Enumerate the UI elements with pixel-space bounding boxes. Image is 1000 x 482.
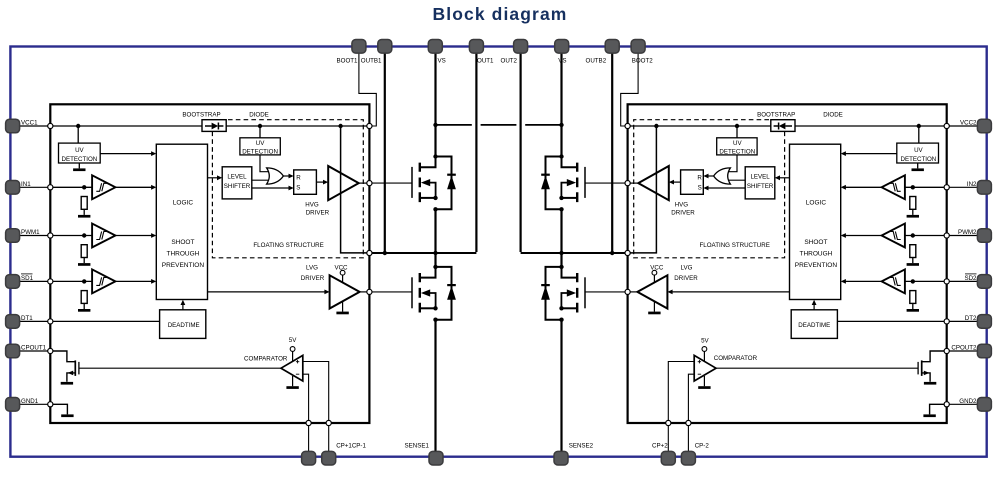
svg-text:PREVENTION: PREVENTION xyxy=(795,262,838,269)
svg-text:DIODE: DIODE xyxy=(823,112,843,119)
svg-text:SHIFTER: SHIFTER xyxy=(224,183,251,190)
svg-text:S: S xyxy=(296,184,300,191)
svg-text:CP+1CP-1: CP+1CP-1 xyxy=(336,443,366,450)
svg-text:LEVEL: LEVEL xyxy=(750,173,770,180)
svg-text:UV: UV xyxy=(914,147,923,154)
svg-text:SHOOT: SHOOT xyxy=(804,239,827,246)
svg-text:FLOATING STRUCTURE: FLOATING STRUCTURE xyxy=(253,242,323,249)
svg-text:COMPARATOR: COMPARATOR xyxy=(714,355,758,362)
svg-text:HVG: HVG xyxy=(675,202,689,209)
svg-text:DT1: DT1 xyxy=(21,315,33,322)
svg-text:BOOTSTRAP: BOOTSTRAP xyxy=(182,112,220,119)
svg-text:BOOT1: BOOT1 xyxy=(337,58,359,65)
svg-text:IN1: IN1 xyxy=(21,181,31,188)
svg-text:COMPARATOR: COMPARATOR xyxy=(244,356,288,363)
svg-text:GND1: GND1 xyxy=(21,398,39,405)
svg-text:FLOATING STRUCTURE: FLOATING STRUCTURE xyxy=(700,242,770,249)
svg-text:LEVEL: LEVEL xyxy=(227,173,247,180)
svg-text:S: S xyxy=(698,184,702,191)
svg-text:VCC1: VCC1 xyxy=(21,120,38,127)
svg-text:DRIVER: DRIVER xyxy=(301,275,325,282)
svg-text:DIODE: DIODE xyxy=(249,112,269,119)
svg-text:DETECTION: DETECTION xyxy=(901,156,937,163)
svg-text:LVG: LVG xyxy=(306,265,318,272)
svg-text:UV: UV xyxy=(733,140,742,147)
svg-text:LOGIC: LOGIC xyxy=(806,200,827,207)
svg-text:SHIFTER: SHIFTER xyxy=(747,183,774,190)
svg-text:THROUGH: THROUGH xyxy=(799,250,832,257)
svg-text:CP-2: CP-2 xyxy=(695,443,710,450)
svg-text:PWM2: PWM2 xyxy=(958,229,977,236)
svg-text:DEADTIME: DEADTIME xyxy=(798,322,830,329)
svg-text:THROUGH: THROUGH xyxy=(166,250,199,257)
svg-text:Block diagram: Block diagram xyxy=(433,4,568,24)
svg-text:LVG: LVG xyxy=(681,265,693,272)
svg-text:CPOUT1: CPOUT1 xyxy=(21,345,47,352)
svg-text:VS: VS xyxy=(558,58,566,65)
svg-text:CPOUT2: CPOUT2 xyxy=(951,345,977,352)
svg-text:SD1: SD1 xyxy=(21,275,34,282)
svg-text:PREVENTION: PREVENTION xyxy=(162,262,205,269)
svg-text:SHOOT: SHOOT xyxy=(171,239,194,246)
svg-text:LOGIC: LOGIC xyxy=(173,200,194,207)
svg-text:OUTB2: OUTB2 xyxy=(586,58,607,65)
svg-text:SENSE1: SENSE1 xyxy=(405,443,430,450)
svg-text:DT2: DT2 xyxy=(965,315,977,322)
svg-text:IN2: IN2 xyxy=(967,181,977,188)
svg-text:R: R xyxy=(296,174,301,181)
svg-text:5V: 5V xyxy=(289,337,297,344)
svg-text:BOOT2: BOOT2 xyxy=(632,58,654,65)
svg-text:DEADTIME: DEADTIME xyxy=(168,322,200,329)
svg-text:VCC: VCC xyxy=(650,265,664,272)
svg-text:UV: UV xyxy=(256,140,265,147)
svg-text:DRIVER: DRIVER xyxy=(674,275,698,282)
svg-text:DETECTION: DETECTION xyxy=(62,156,98,163)
svg-text:GND2: GND2 xyxy=(959,398,977,405)
svg-text:5V: 5V xyxy=(701,338,709,345)
svg-text:SENSE2: SENSE2 xyxy=(569,443,594,450)
svg-text:DETECTION: DETECTION xyxy=(719,149,755,156)
svg-text:HVG: HVG xyxy=(305,202,319,209)
svg-text:VCC2: VCC2 xyxy=(960,120,977,127)
svg-text:DETECTION: DETECTION xyxy=(242,149,278,156)
svg-text:VS: VS xyxy=(438,58,446,65)
svg-text:R: R xyxy=(697,174,702,181)
svg-text:OUTB1: OUTB1 xyxy=(361,58,382,65)
svg-text:OUT2: OUT2 xyxy=(501,58,518,65)
svg-text:CP+2: CP+2 xyxy=(652,443,668,450)
svg-text:PWM1: PWM1 xyxy=(21,229,40,236)
svg-text:OUT1: OUT1 xyxy=(477,58,494,65)
svg-text:UV: UV xyxy=(75,147,84,154)
svg-text:VCC: VCC xyxy=(334,265,348,272)
svg-text:SD2: SD2 xyxy=(964,275,977,282)
svg-text:DRIVER: DRIVER xyxy=(306,210,330,217)
svg-text:BOOTSTRAP: BOOTSTRAP xyxy=(757,112,795,119)
svg-text:DRIVER: DRIVER xyxy=(671,210,695,217)
